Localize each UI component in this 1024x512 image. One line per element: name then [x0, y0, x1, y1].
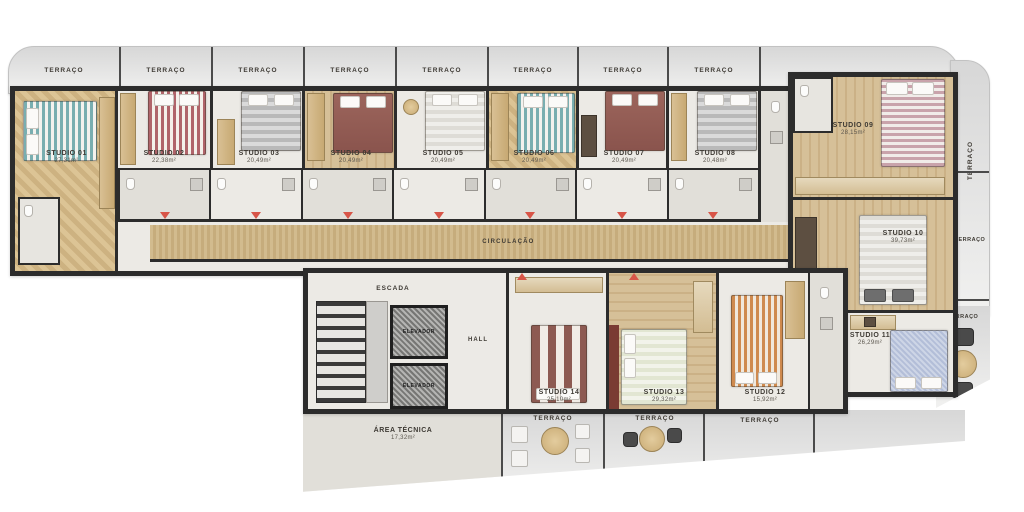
top-terrace-4-label: TERRAÇO: [330, 67, 369, 74]
studio-area: 39,73m²: [853, 238, 953, 246]
round-table: [639, 426, 665, 452]
stair-landing: [366, 301, 388, 403]
entry-marker-icon: [251, 212, 261, 219]
bed: [731, 295, 783, 387]
desk: [795, 217, 817, 275]
studio-area: 20,49m²: [489, 158, 579, 166]
technical-area-size: 17,32m²: [328, 435, 478, 443]
entry-marker-icon: [343, 212, 353, 219]
right-terrace-2-label: TERRAÇO: [955, 237, 986, 243]
bed: [697, 91, 757, 151]
bathroom: [301, 170, 392, 219]
studio-name: STUDIO 02: [144, 150, 185, 157]
studio-name: STUDIO 03: [239, 150, 280, 157]
bathroom: [484, 170, 575, 219]
top-terrace-7-label: TERRAÇO: [603, 67, 642, 74]
bathroom-zone: [758, 91, 790, 222]
square-table: [511, 426, 528, 443]
bathroom: [392, 170, 483, 219]
bottom-terrace-2-label: TERRAÇO: [605, 415, 705, 422]
bed: [517, 93, 575, 153]
entry-marker-icon: [434, 212, 444, 219]
studio-area: 22,38m²: [118, 158, 210, 166]
lower-wing: ESCADA ELEVADOR ELEVADOR HALL STUDIO 14 …: [303, 268, 848, 414]
bed: [425, 91, 485, 151]
studio-name: STUDIO 01: [46, 150, 87, 157]
bathroom-zone: [808, 273, 843, 409]
top-wing: STUDIO 01 27,31m² STUDIO 02 22,38m²: [10, 86, 795, 276]
room-studio-01: STUDIO 01 27,31m²: [15, 91, 118, 271]
room-studio-05: STUDIO 05 20,49m²: [394, 91, 486, 168]
studio-name: STUDIO 08: [695, 150, 736, 157]
entry-marker-icon: [525, 212, 535, 219]
square-table: [575, 448, 590, 463]
floor-plan: ÁREA TÉCNICA 17,32m² TERRAÇO TERRAÇO TER…: [0, 0, 1024, 512]
laptop: [864, 317, 876, 327]
studio-area: 29,32m²: [609, 397, 719, 405]
studio-name: STUDIO 05: [423, 150, 464, 157]
top-terrace-8-label: TERRAÇO: [694, 67, 733, 74]
bottom-terrace-1: TERRAÇO: [503, 410, 603, 496]
corridor: CIRCULAÇÃO: [150, 225, 790, 262]
technical-area-name: ÁREA TÉCNICA: [374, 427, 433, 434]
studio-name: STUDIO 09: [833, 122, 874, 129]
studio-name: STUDIO 12: [745, 389, 786, 396]
studio-name: STUDIO 06: [514, 150, 555, 157]
top-terrace-6-label: TERRAÇO: [513, 67, 552, 74]
corridor-label: CIRCULAÇÃO: [482, 239, 534, 247]
room-studio-14: STUDIO 14 25,10m²: [506, 273, 606, 409]
bottom-terrace-filler: [813, 410, 965, 496]
bathroom-strip: [118, 168, 758, 222]
room-studio-11: STUDIO 11 26,29m²: [842, 313, 953, 392]
studio-area: 20,49m²: [305, 158, 397, 166]
studio-area: 20,49m²: [579, 158, 669, 166]
studio-name: STUDIO 04: [331, 150, 372, 157]
top-terrace-1-label: TERRAÇO: [44, 67, 83, 74]
entry-marker-icon: [629, 273, 639, 280]
right-terrace-1-label: TERRAÇO: [967, 141, 974, 180]
room-studio-06: STUDIO 06 20,49m²: [486, 91, 576, 168]
bathroom: [667, 170, 758, 219]
hall-label: HALL: [468, 337, 488, 345]
entry-marker-icon: [160, 212, 170, 219]
studio-area: 20,49m²: [213, 158, 305, 166]
kitchen-counter: [515, 277, 603, 293]
kitchen-counter: [795, 177, 945, 195]
kitchen-counter: [693, 281, 713, 333]
chair: [403, 99, 419, 115]
studio-area: 28,15m²: [803, 130, 903, 138]
studio-name: STUDIO 10: [883, 230, 924, 237]
bed: [241, 91, 301, 151]
technical-area: ÁREA TÉCNICA 17,32m²: [303, 410, 503, 496]
room-studio-12: STUDIO 12 15,92m²: [716, 273, 808, 409]
studio-name: STUDIO 07: [604, 150, 645, 157]
studio-name: STUDIO 14: [539, 389, 580, 396]
elevator-2: ELEVADOR: [390, 363, 448, 409]
chair: [623, 432, 638, 447]
bed: [605, 91, 665, 151]
entry-marker-icon: [617, 212, 627, 219]
bathroom: [209, 170, 300, 219]
studio-area: 15,92m²: [719, 397, 811, 405]
elevator-1-label: ELEVADOR: [403, 329, 435, 336]
bottom-terrace-strip: ÁREA TÉCNICA 17,32m² TERRAÇO TERRAÇO TER…: [303, 410, 965, 496]
wall: [793, 197, 953, 200]
room-studio-04: STUDIO 04 20,49m²: [302, 91, 394, 168]
square-table: [511, 450, 528, 467]
square-table: [575, 424, 590, 439]
room-studio-02: STUDIO 02 22,38m²: [118, 91, 210, 168]
bathroom: [118, 170, 209, 219]
bottom-terrace-3: TERRAÇO: [703, 410, 813, 496]
room-studio-03: STUDIO 03 20,49m²: [210, 91, 302, 168]
bed: [148, 91, 206, 155]
bottom-terrace-3-label: TERRAÇO: [705, 417, 815, 424]
wardrobe: [785, 281, 805, 339]
studio-area: 25,10m²: [509, 397, 609, 405]
entry-marker-icon: [517, 273, 527, 280]
studio-10-label: STUDIO 10 39,73m²: [853, 229, 953, 246]
studio-area: 20,49m²: [397, 158, 489, 166]
room-studio-07: STUDIO 07 20,49m²: [576, 91, 666, 168]
stairs: [316, 301, 366, 403]
stairs-label: ESCADA: [338, 285, 448, 293]
studio-name: STUDIO 11: [850, 332, 890, 339]
studio-area: 27,31m²: [15, 158, 118, 166]
bed: [333, 93, 393, 153]
chair: [667, 428, 682, 443]
round-table: [541, 427, 569, 455]
entry-marker-icon: [708, 212, 718, 219]
top-terrace-5-label: TERRAÇO: [422, 67, 461, 74]
studio-name: STUDIO 13: [644, 389, 685, 396]
elevator-1: ELEVADOR: [390, 305, 448, 359]
bathroom: [18, 197, 60, 265]
studio-09-label: STUDIO 09 28,15m²: [803, 121, 903, 138]
elevator-2-label: ELEVADOR: [403, 383, 435, 390]
bathroom: [575, 170, 666, 219]
top-terrace-2-label: TERRAÇO: [146, 67, 185, 74]
room-studio-08: STUDIO 08 20,48m²: [666, 91, 758, 168]
studio-area: 20,48m²: [669, 158, 761, 166]
hall: HALL: [450, 273, 506, 409]
bottom-terrace-2: TERRAÇO: [603, 410, 703, 496]
room-studio-13: STUDIO 13 29,32m²: [606, 273, 716, 409]
top-terrace-3-label: TERRAÇO: [238, 67, 277, 74]
bottom-terrace-1-label: TERRAÇO: [503, 415, 603, 422]
